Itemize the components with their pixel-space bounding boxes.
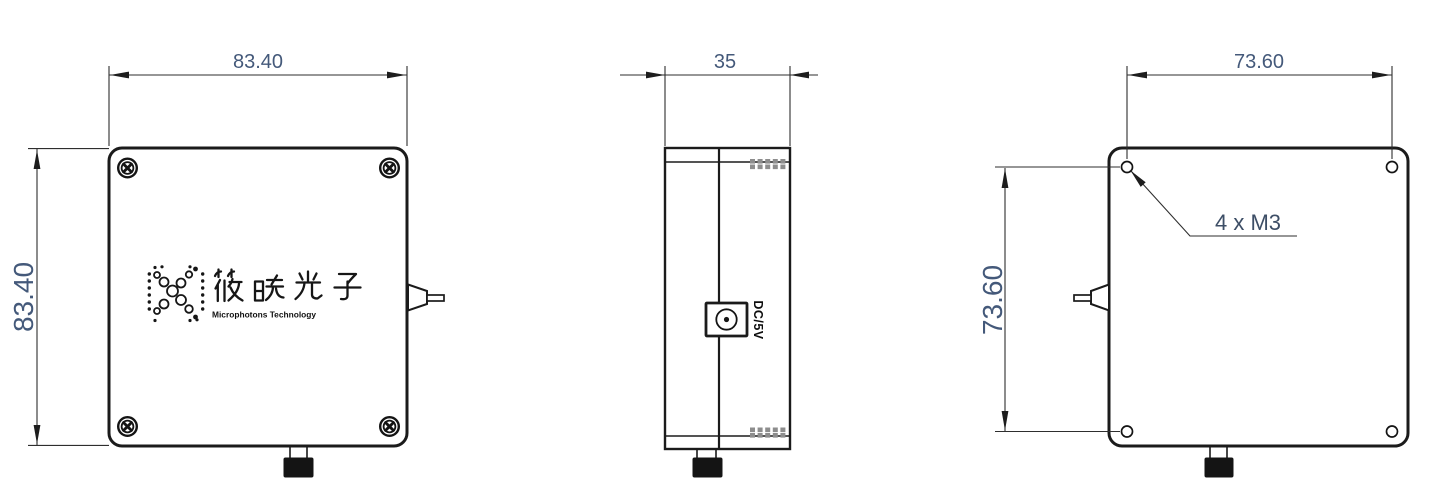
extension-line [109, 66, 407, 146]
extension-line [28, 149, 109, 446]
logo-subtitle: Microphotons Technology [212, 310, 316, 320]
extension-line [665, 66, 790, 146]
fiber-pigtail-connector-icon [408, 285, 444, 311]
logo-dot [154, 308, 160, 314]
connector-nut [693, 458, 722, 477]
logo-dot [167, 286, 178, 297]
engineering-drawing-canvas: 筱晓光子 Microphotons Technology [0, 0, 1438, 497]
back-width-label: 73.60 [1234, 51, 1284, 73]
logo-dot [201, 279, 204, 282]
drawing-svg: 筱晓光子 Microphotons Technology [0, 0, 1438, 497]
fiber-boot [1091, 285, 1109, 311]
logo-dot [153, 319, 156, 322]
dimension-arrowhead [110, 72, 129, 79]
logo-dot [153, 266, 156, 269]
logo-dot [154, 272, 160, 278]
dimension-arrowhead [34, 425, 41, 444]
connector-nut [1205, 458, 1233, 477]
side-view: DC/5V [665, 148, 790, 477]
front-view: 筱晓光子 Microphotons Technology [109, 148, 444, 477]
dimension-arrowhead [1002, 411, 1009, 431]
fiber-boot [408, 285, 427, 311]
logo-dot [185, 305, 193, 313]
logo-dot [193, 267, 198, 272]
front-width-dimension: 83.40 [109, 51, 407, 146]
connector-neck [290, 447, 307, 458]
front-enclosure-body [109, 148, 407, 446]
dc-jack-pin [724, 317, 729, 322]
logo-dot [186, 271, 192, 277]
front-height-label: 83.40 [8, 262, 39, 332]
logo-dot [148, 279, 151, 282]
dimension-arrowhead [34, 150, 41, 169]
side-width-label: 35 [714, 51, 736, 73]
connector-neck [1210, 447, 1227, 458]
side-enclosure-body [665, 148, 790, 449]
logo-dot [188, 265, 191, 268]
dimension-arrowhead [790, 72, 809, 79]
holes-note-label: 4 x M3 [1215, 210, 1281, 235]
logo-dot [201, 307, 204, 310]
dimension-arrowhead [1372, 72, 1391, 79]
logo-dot [201, 293, 204, 296]
dimension-arrowhead [1128, 72, 1147, 79]
m3-hole-icon [1122, 426, 1133, 437]
dimension-arrowhead [646, 72, 665, 79]
logo-dot [201, 300, 204, 303]
logo-dot [176, 295, 186, 305]
fiber-pin [427, 295, 444, 301]
logo-dot [148, 307, 151, 310]
connector-nut-icon [1205, 447, 1233, 477]
connector-nut [284, 458, 313, 477]
front-width-label: 83.40 [233, 51, 283, 73]
logo-dot [195, 318, 198, 321]
connector-nut-icon [284, 447, 313, 477]
logo-dot [160, 300, 169, 309]
fiber-pigtail-connector-icon [1074, 285, 1109, 311]
logo-dot [160, 265, 163, 268]
phillips-screw-icon [118, 159, 137, 178]
back-height-label: 73.60 [977, 265, 1008, 335]
logo-dot [177, 279, 186, 288]
back-view: 4 x M3 [1074, 148, 1408, 477]
logo-dot [201, 272, 204, 275]
front-height-dimension: 83.40 [8, 149, 109, 446]
logo-dot [148, 286, 151, 289]
logo-dot [148, 300, 151, 303]
dc-power-jack-icon [706, 303, 747, 336]
connector-neck [697, 449, 716, 458]
m3-hole-icon [1387, 426, 1398, 437]
phillips-screw-icon [118, 417, 137, 436]
extension-line [1127, 66, 1392, 159]
logo-dot [201, 286, 204, 289]
logo-dot [148, 293, 151, 296]
back-enclosure-body [1109, 148, 1408, 446]
back-width-dimension: 73.60 [1127, 51, 1392, 159]
fiber-pin [1074, 295, 1091, 301]
logo-dot [188, 319, 191, 322]
logo-dot [160, 278, 169, 287]
logo-dot [148, 272, 151, 275]
m3-hole-icon [1387, 162, 1398, 173]
dimension-arrowhead [387, 72, 406, 79]
dimension-arrowhead [1002, 169, 1009, 189]
side-width-dimension: 35 [620, 51, 818, 146]
dc-port-label: DC/5V [751, 300, 765, 339]
connector-nut-icon [693, 449, 722, 477]
phillips-screw-icon [380, 417, 399, 436]
phillips-screw-icon [380, 159, 399, 178]
